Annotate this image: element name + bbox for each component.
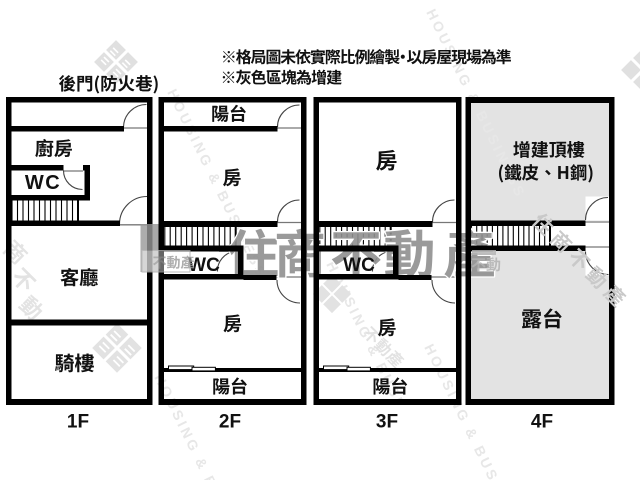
svg-text:2F: 2F — [219, 412, 241, 433]
svg-text:WC: WC — [188, 255, 220, 276]
svg-text:1F: 1F — [67, 412, 89, 433]
svg-text:4F: 4F — [531, 412, 553, 433]
svg-text:WC: WC — [25, 172, 61, 194]
svg-text:WC: WC — [343, 255, 375, 276]
svg-text:3F: 3F — [376, 412, 398, 433]
